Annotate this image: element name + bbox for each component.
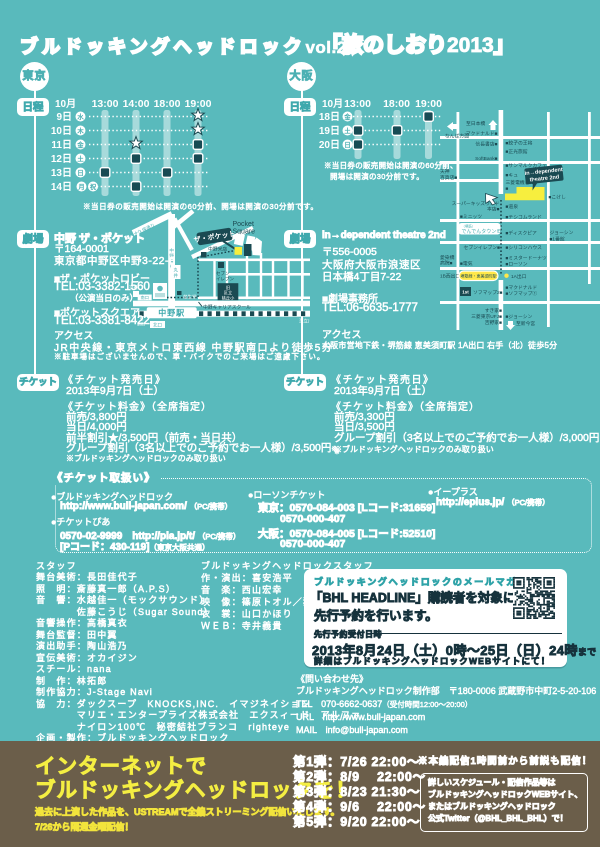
svg-text:■ミスタードーナツ: ■ミスタードーナツ (506, 255, 547, 262)
svg-text:信長書店■: 信長書店■ (475, 141, 497, 148)
svg-text:金: 金 (76, 140, 84, 149)
svg-text:13:00: 13:00 (344, 98, 371, 110)
svg-text:■ジョーシン: ■ジョーシン (506, 315, 533, 320)
svg-text:本店■: 本店■ (487, 206, 500, 213)
svg-text:祝: 祝 (90, 182, 97, 191)
svg-text:Pocket: Pocket (233, 221, 254, 228)
svg-text:至立川: 至立川 (299, 318, 310, 324)
svg-text:■キュ: ■キュ (506, 174, 519, 179)
svg-text:（堺筋）: （堺筋） (462, 224, 476, 229)
svg-text:吉野家■: 吉野家■ (485, 319, 502, 326)
svg-text:19:00: 19:00 (415, 98, 442, 110)
svg-text:12日: 12日 (51, 153, 72, 165)
svg-text:中野米店: 中野米店 (208, 246, 227, 253)
svg-text:19日: 19日 (319, 125, 340, 137)
svg-text:月: 月 (77, 183, 85, 191)
svg-text:1A出口: 1A出口 (511, 273, 527, 280)
svg-text:■ソフマップ①: ■ソフマップ① (506, 290, 538, 297)
svg-text:■ディスクピア: ■ディスクピア (506, 230, 538, 237)
svg-text:20日: 20日 (319, 139, 340, 151)
svg-text:■テシコムランド: ■テシコムランド (506, 215, 542, 221)
svg-text:1B西出口: 1B西出口 (440, 273, 460, 280)
svg-text:荏生堂: 荏生堂 (183, 294, 197, 301)
svg-text:日: 日 (77, 169, 84, 177)
svg-text:区立: 区立 (224, 289, 232, 295)
svg-text:堺筋線・恵美須町駅: 堺筋線・恵美須町駅 (461, 273, 497, 279)
svg-text:水: 水 (77, 112, 84, 121)
svg-text:SoftBank■: SoftBank■ (475, 156, 497, 162)
svg-text:百貨店■: 百貨店■ (440, 174, 457, 181)
svg-text:■正光旅館: ■正光旅館 (506, 148, 528, 155)
svg-text:13日: 13日 (51, 167, 72, 179)
svg-text:至新今宮: 至新今宮 (516, 320, 535, 327)
svg-text:ジョーシン: ジョーシン (550, 231, 574, 236)
svg-text:南口: 南口 (141, 294, 149, 300)
svg-text:■: ■ (506, 187, 509, 192)
svg-text:9日: 9日 (56, 111, 72, 123)
svg-text:井: 井 (173, 272, 178, 279)
svg-text:三菱東京UFJ■: 三菱東京UFJ■ (471, 313, 502, 320)
svg-text:愛染橋: 愛染橋 (440, 254, 455, 261)
svg-text:■ミニッツ: ■ミニッツ (460, 214, 482, 220)
svg-text:至日本橋: 至日本橋 (466, 120, 485, 127)
svg-text:18日: 18日 (319, 111, 340, 123)
svg-text:セブンイレブン■: セブンイレブン■ (464, 244, 501, 251)
svg-text:14:00: 14:00 (123, 98, 150, 110)
svg-text:ソフマップ2■: ソフマップ2■ (473, 290, 503, 296)
svg-text:■ローソン: ■ローソン (506, 262, 528, 268)
svg-text:金: 金 (343, 112, 351, 121)
svg-text:でんでんタウン⊕: でんでんタウン⊕ (462, 228, 502, 235)
svg-text:日: 日 (344, 141, 351, 149)
svg-text:13:00: 13:00 (92, 98, 119, 110)
svg-text:■道泉: ■道泉 (506, 203, 519, 210)
svg-text:■1番館: ■1番館 (550, 236, 565, 243)
svg-text:11日: 11日 (51, 139, 72, 151)
svg-text:14日: 14日 (51, 181, 72, 193)
svg-text:病院■: 病院■ (440, 260, 453, 267)
svg-text:セブン: セブン (216, 270, 230, 276)
svg-text:土: 土 (77, 154, 84, 163)
svg-text:1st: 1st (462, 290, 469, 295)
svg-text:マクドナルド■: マクドナルド■ (466, 131, 498, 137)
svg-text:■こけし: ■こけし (549, 195, 566, 201)
svg-text:すき家■: すき家■ (485, 307, 502, 314)
svg-text:中野駅: 中野駅 (158, 307, 185, 317)
svg-text:土: 土 (344, 126, 351, 135)
svg-text:■電気: ■電気 (460, 260, 473, 267)
svg-text:中野キャリアスクール: 中野キャリアスクール (203, 303, 251, 310)
svg-text:桃丘小: 桃丘小 (222, 295, 235, 302)
svg-text:北口: 北口 (153, 322, 162, 329)
svg-text:18:00: 18:00 (383, 98, 410, 110)
svg-text:■餃子の王将: ■餃子の王将 (506, 140, 533, 147)
svg-text:木: 木 (76, 126, 84, 135)
svg-text:10月: 10月 (55, 98, 76, 110)
svg-text:■シリコンハウス: ■シリコンハウス (506, 244, 543, 251)
svg-text:10日: 10日 (51, 125, 72, 137)
svg-text:10月: 10月 (322, 98, 343, 110)
svg-text:天神: 天神 (440, 168, 450, 175)
svg-text:18:00: 18:00 (154, 98, 181, 110)
svg-text:イレブン: イレブン (216, 276, 234, 282)
svg-text:■マクドナルド: ■マクドナルド (506, 285, 538, 291)
